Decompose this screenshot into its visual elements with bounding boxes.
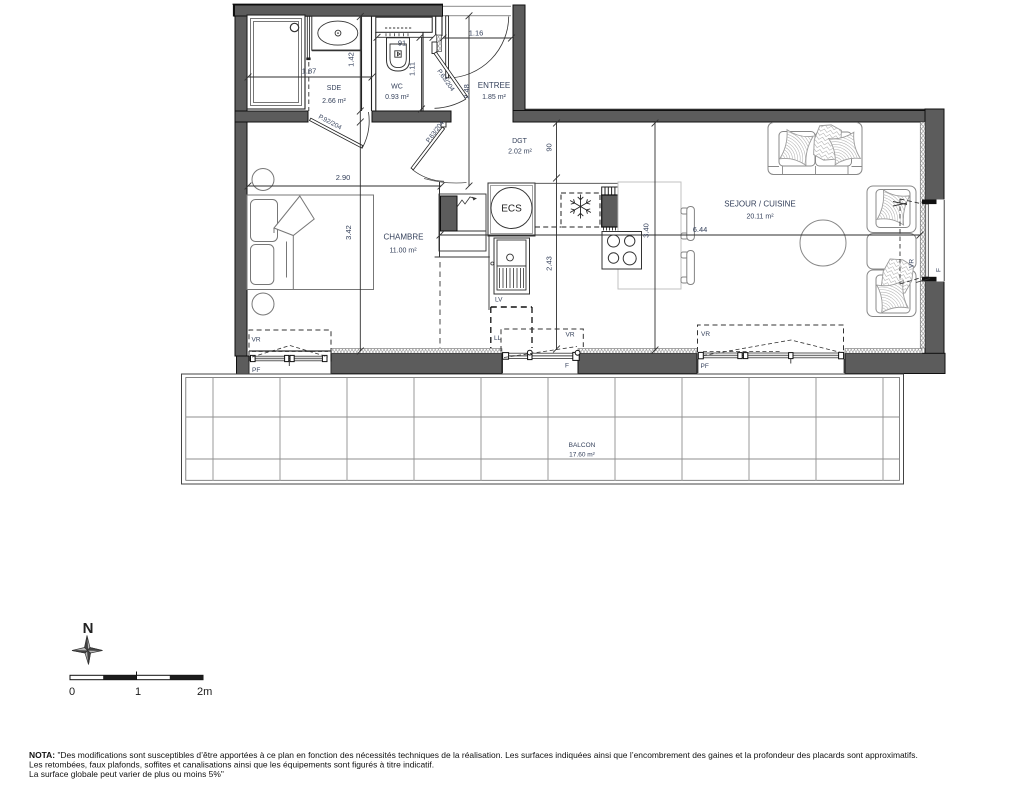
- svg-text:LL: LL: [494, 335, 502, 342]
- svg-text:20.11 m²: 20.11 m²: [746, 214, 774, 221]
- svg-text:SDE: SDE: [327, 85, 342, 92]
- svg-text:1.11: 1.11: [408, 62, 417, 76]
- svg-text:SEJOUR / CUISINE: SEJOUR / CUISINE: [724, 200, 796, 209]
- svg-text:1.85 m²: 1.85 m²: [482, 94, 506, 101]
- svg-text:2.66 m²: 2.66 m²: [322, 98, 346, 105]
- svg-text:1.16: 1.16: [469, 29, 484, 38]
- svg-text:11.00 m²: 11.00 m²: [389, 248, 417, 255]
- svg-text:1.87: 1.87: [302, 67, 317, 76]
- svg-text:3.40: 3.40: [642, 223, 651, 238]
- svg-text:6.44: 6.44: [693, 225, 708, 234]
- svg-text:La surface globale peut varier: La surface globale peut varier de plus o…: [29, 769, 224, 779]
- svg-text:N: N: [83, 620, 94, 637]
- svg-text:PF: PF: [252, 367, 260, 374]
- svg-text:0: 0: [69, 686, 75, 698]
- svg-text:2.90: 2.90: [336, 173, 351, 182]
- svg-text:1: 1: [135, 686, 141, 698]
- svg-text:ENTREE: ENTREE: [478, 81, 510, 90]
- svg-text:91: 91: [398, 39, 406, 48]
- svg-text:F: F: [936, 268, 943, 272]
- svg-text:0.93 m²: 0.93 m²: [385, 94, 409, 101]
- svg-text:LV: LV: [495, 297, 503, 304]
- svg-text:VR: VR: [909, 259, 916, 268]
- svg-text:CHAMBRE: CHAMBRE: [383, 233, 423, 242]
- svg-text:90: 90: [545, 143, 554, 151]
- svg-text:VR: VR: [701, 331, 710, 338]
- svg-text:VR: VR: [252, 337, 261, 344]
- svg-text:2m: 2m: [197, 686, 212, 698]
- svg-text:2.43: 2.43: [545, 256, 554, 271]
- svg-text:2.02 m²: 2.02 m²: [508, 149, 532, 156]
- svg-text:2.48: 2.48: [462, 84, 471, 99]
- svg-text:3.42: 3.42: [344, 225, 353, 240]
- svg-text:NOTA: "Des modifications sont: NOTA: "Des modifications sont susceptibl…: [29, 750, 918, 760]
- svg-text:VR: VR: [566, 332, 575, 339]
- svg-text:WC: WC: [391, 84, 403, 91]
- svg-text:ECS: ECS: [501, 204, 522, 215]
- svg-text:BALCON: BALCON: [569, 442, 596, 449]
- svg-text:PF: PF: [701, 363, 709, 370]
- svg-text:17.60 m²: 17.60 m²: [569, 452, 595, 459]
- svg-text:1.42: 1.42: [347, 52, 356, 67]
- svg-text:DGT: DGT: [512, 138, 528, 145]
- svg-text:Les retombées, faux plafonds,: Les retombées, faux plafonds, soffites e…: [29, 760, 434, 770]
- svg-text:F: F: [565, 363, 569, 370]
